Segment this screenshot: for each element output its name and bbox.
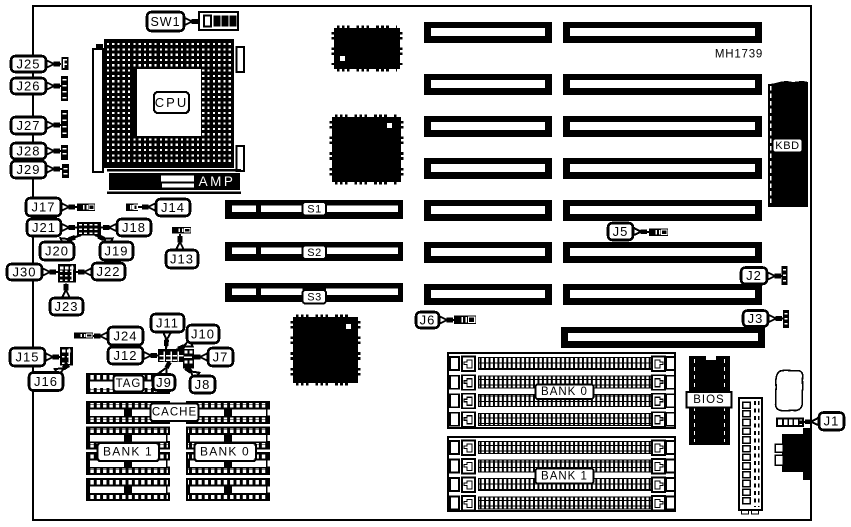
svg-text:J25: J25: [17, 56, 41, 71]
svg-text:AMP: AMP: [199, 174, 236, 189]
svg-text:J17: J17: [32, 199, 56, 214]
svg-text:J6: J6: [420, 312, 436, 327]
svg-text:J1: J1: [824, 414, 840, 429]
svg-text:J7: J7: [213, 349, 229, 364]
svg-text:S3: S3: [307, 291, 321, 303]
svg-text:J11: J11: [156, 315, 179, 330]
svg-text:J16: J16: [34, 374, 58, 389]
svg-text:J8: J8: [195, 377, 211, 392]
svg-text:J5: J5: [613, 224, 629, 239]
svg-text:J21: J21: [32, 220, 56, 235]
svg-text:J13: J13: [170, 251, 194, 266]
svg-text:BANK 0: BANK 0: [200, 445, 250, 459]
svg-text:BANK 1: BANK 1: [541, 471, 588, 483]
svg-text:BIOS: BIOS: [693, 394, 724, 406]
svg-text:SW1: SW1: [150, 15, 180, 29]
svg-text:S2: S2: [307, 247, 321, 259]
svg-text:MH1739: MH1739: [715, 49, 763, 61]
svg-text:CACHE: CACHE: [152, 407, 197, 419]
svg-text:J24: J24: [114, 328, 138, 343]
svg-text:J12: J12: [114, 348, 138, 363]
svg-text:KBD: KBD: [775, 140, 799, 152]
svg-text:J23: J23: [55, 299, 79, 314]
svg-text:BANK 1: BANK 1: [103, 445, 153, 459]
svg-text:BANK 0: BANK 0: [541, 386, 588, 398]
svg-text:J9: J9: [156, 375, 172, 390]
svg-text:J30: J30: [13, 264, 37, 279]
svg-text:J26: J26: [17, 78, 41, 93]
svg-text:J22: J22: [97, 264, 121, 279]
svg-text:TAG: TAG: [116, 378, 142, 390]
svg-text:J20: J20: [45, 243, 69, 258]
svg-text:J27: J27: [17, 118, 41, 133]
svg-text:J18: J18: [122, 220, 146, 235]
svg-text:J19: J19: [105, 243, 129, 258]
svg-text:J28: J28: [17, 143, 41, 158]
svg-text:J29: J29: [17, 162, 41, 177]
svg-text:J2: J2: [746, 268, 762, 283]
svg-text:J14: J14: [161, 200, 185, 215]
svg-text:J10: J10: [191, 326, 215, 341]
svg-text:CPU: CPU: [155, 95, 188, 110]
svg-text:J3: J3: [748, 311, 764, 326]
svg-text:J15: J15: [16, 349, 40, 364]
svg-text:S1: S1: [307, 203, 321, 215]
